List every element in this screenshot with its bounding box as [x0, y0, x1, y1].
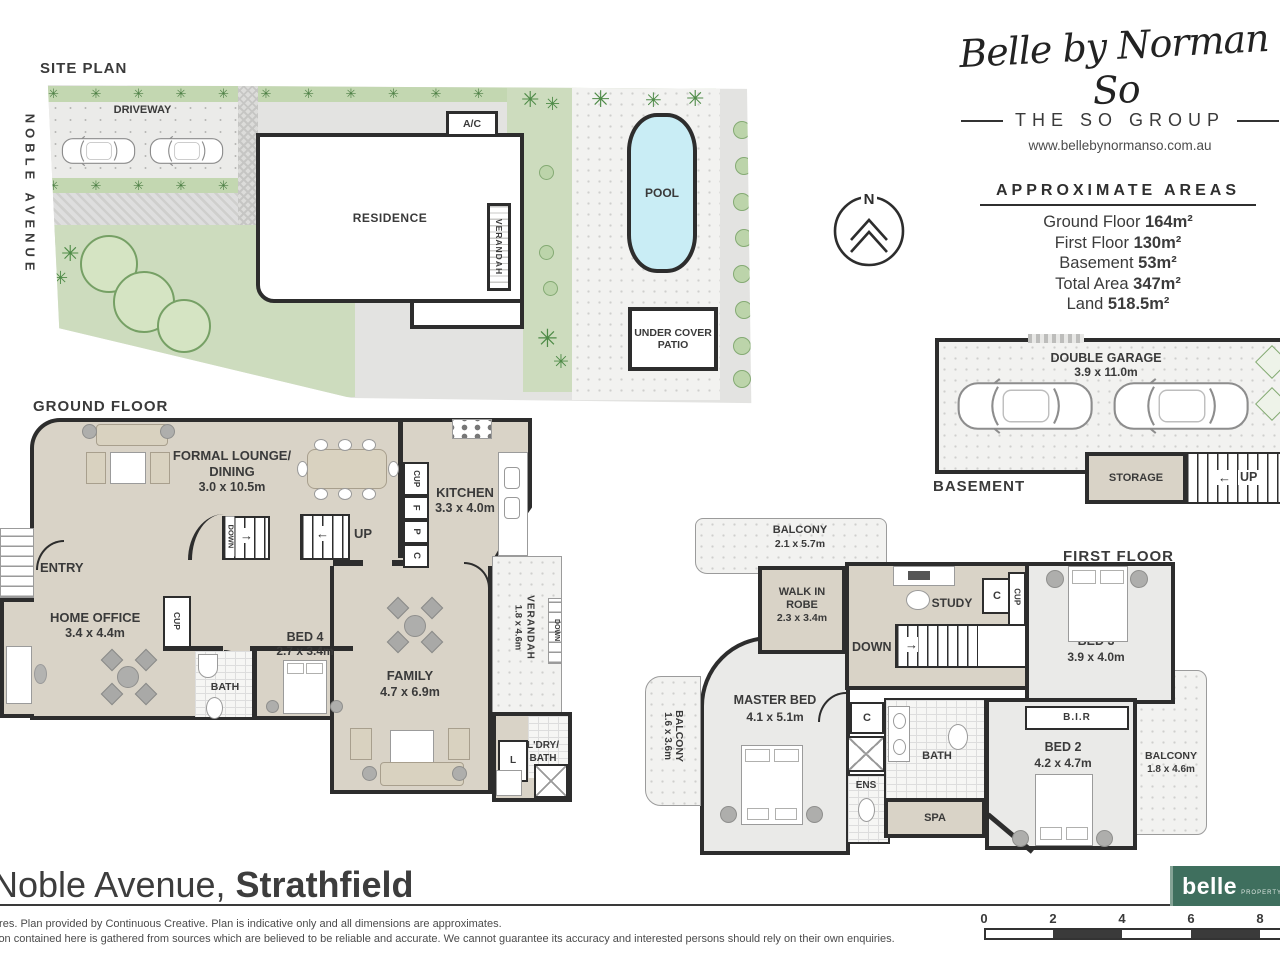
- wir-dims: 2.3 x 3.4m: [762, 612, 842, 624]
- palm-icon: ✳: [645, 91, 662, 111]
- address-suburb: Strathfield: [236, 864, 414, 905]
- area-row: Basement 53m²: [980, 253, 1256, 274]
- family-dims: 4.7 x 6.9m: [360, 685, 460, 700]
- nightstand-icon: [330, 700, 343, 713]
- tree-icon: [539, 245, 554, 260]
- washer-icon: [496, 770, 522, 796]
- rule-icon: [961, 120, 1003, 122]
- garage-label: DOUBLE GARAGE: [1040, 351, 1172, 366]
- nightstand-icon: [1012, 830, 1029, 847]
- up-label: UP: [354, 526, 372, 541]
- armchair-icon: [350, 728, 372, 760]
- bed4-dims: 2.7 x 3.4m: [262, 644, 348, 658]
- tree-icon: [543, 281, 558, 296]
- palm-icon: ✳: [537, 327, 558, 352]
- palm-icon: ✳: [686, 88, 704, 110]
- car-icon: [149, 127, 225, 175]
- arrow-right-icon: →: [240, 528, 253, 543]
- balcony-right-dims: 1.8 x 4.6m: [1138, 764, 1204, 776]
- plant-pot-icon: [362, 766, 377, 781]
- chair-icon: [314, 488, 328, 500]
- rule-icon: [1237, 120, 1279, 122]
- pool: POOL: [627, 113, 697, 273]
- balcony-top-label: BALCONY: [740, 524, 860, 537]
- svg-text:N: N: [864, 191, 875, 208]
- belle-logo-text: belle: [1182, 873, 1237, 900]
- shower-icon: [534, 764, 568, 798]
- chair-icon: [388, 461, 399, 477]
- cupboard-label: CUP: [1012, 572, 1021, 622]
- brand-group: THE SO GROUP: [955, 110, 1280, 131]
- north-compass-icon: N: [830, 190, 908, 270]
- desk-icon: [893, 566, 955, 586]
- chair-icon: [338, 488, 352, 500]
- nightstand-icon: [1096, 830, 1113, 847]
- toilet-icon: [858, 798, 875, 822]
- scale-tick: 8: [1256, 911, 1263, 926]
- wall: [333, 560, 363, 566]
- site-verandah: VERANDAH: [487, 203, 511, 291]
- coffee-table-icon: [110, 452, 146, 484]
- tree-icon: [733, 193, 751, 211]
- plant-pot-icon: [82, 424, 97, 439]
- balcony-right-label: BALCONY: [1140, 750, 1202, 762]
- lounge-dims: 3.0 x 10.5m: [152, 480, 312, 495]
- car-icon: [61, 127, 137, 175]
- tree-icon: [157, 299, 211, 353]
- site-plan-title: SITE PLAN: [40, 60, 127, 78]
- garage-door: [1028, 334, 1084, 343]
- bed2-label: BED 2: [1028, 740, 1098, 755]
- plant-icon: ✳: [61, 243, 79, 265]
- patio-label-line2: PATIO: [658, 339, 689, 351]
- residence-label: RESIDENCE: [353, 211, 428, 225]
- basement-up-label: UP: [1238, 470, 1259, 485]
- plant-pot-icon: [452, 766, 467, 781]
- brand-logo-script: Belle by Norman So: [948, 15, 1280, 120]
- fridge: F: [403, 496, 429, 520]
- vanity-icon: [888, 706, 910, 762]
- car-icon: [1112, 376, 1252, 436]
- tree-icon: [735, 229, 753, 247]
- tree-icon: [539, 165, 554, 180]
- bath-label: BATH: [200, 681, 250, 693]
- tree-icon: [733, 265, 751, 283]
- bed4-label: BED 4: [262, 630, 348, 645]
- bed2-dims: 4.2 x 4.7m: [1023, 756, 1103, 770]
- area-row: Land 518.5m²: [980, 294, 1256, 315]
- toilet-icon: [948, 724, 968, 750]
- spa-room: SPA: [884, 798, 986, 838]
- armchair-icon: [86, 452, 106, 484]
- balcony-top-dims: 2.1 x 5.7m: [740, 538, 860, 550]
- built-in-robe: B.I.R: [1025, 706, 1129, 730]
- tree-icon: [733, 370, 751, 388]
- lounge-label-line2: DINING: [152, 464, 312, 479]
- pool-label: POOL: [645, 186, 679, 200]
- arrow-left-icon: ←: [316, 526, 329, 541]
- belle-logo-sub: PROPERTY: [1241, 890, 1280, 896]
- arrow-right-icon: →: [905, 637, 918, 652]
- ac-label: A/C: [463, 118, 481, 130]
- nightstand-icon: [1130, 570, 1148, 588]
- nightstand-icon: [806, 806, 823, 823]
- disclaimer-line1: tres. Plan provided by Continuous Creati…: [0, 918, 502, 930]
- under-cover-patio: UNDER COVER PATIO: [628, 307, 718, 371]
- ff-down-label: DOWN: [850, 640, 894, 655]
- nightstand-icon: [266, 700, 279, 713]
- storage-label: STORAGE: [1109, 472, 1163, 485]
- verandah-down-label: DOWN: [552, 602, 560, 658]
- property-address: Noble Avenue, Strathfield: [0, 864, 414, 906]
- driveway-label: DRIVEWAY: [90, 104, 195, 117]
- brand-website[interactable]: www.bellebynormanso.com.au: [955, 138, 1280, 153]
- scale-tick: 4: [1118, 911, 1125, 926]
- address-street: Noble Avenue,: [0, 864, 236, 905]
- nightstand-icon: [1046, 570, 1064, 588]
- site-verandah-label: VERANDAH: [494, 219, 504, 275]
- ground-floor-title: GROUND FLOOR: [33, 398, 168, 416]
- toilet-icon: [206, 697, 223, 719]
- chair-icon: [314, 439, 328, 451]
- car-icon: [956, 376, 1096, 436]
- disclaimer-line2: ion contained here is gathered from sour…: [0, 933, 895, 945]
- tree-icon: [733, 337, 751, 355]
- kitchen-label: KITCHEN: [415, 485, 515, 500]
- belle-property-logo: belle PROPERTY: [1170, 866, 1280, 906]
- dining-table-icon: [307, 449, 387, 489]
- divider-rule: [0, 904, 1170, 906]
- bed3-dims: 3.9 x 4.0m: [1049, 650, 1143, 664]
- bed-icon: [1035, 774, 1093, 846]
- family-label: FAMILY: [360, 668, 460, 683]
- stairs-down-label: DOWN: [226, 516, 235, 556]
- stair-landing: [978, 626, 1025, 666]
- wir-label-line1: WALK IN: [762, 586, 842, 599]
- table-icon: [117, 666, 139, 688]
- scale-tick: 2: [1049, 911, 1056, 926]
- tree-icon: [733, 121, 751, 139]
- scale-tick: 0: [980, 911, 987, 926]
- gf-verandah-label: VERANDAH 1.8 x 4.6m: [513, 568, 536, 688]
- wir-label-line2: ROBE: [762, 599, 842, 612]
- chair-icon: [297, 461, 308, 477]
- palm-icon: ✳: [591, 88, 610, 111]
- kitchen-dims: 3.3 x 4.0m: [415, 501, 515, 516]
- study-label: STUDY: [920, 596, 984, 610]
- approximate-areas: APPROXIMATE AREAS Ground Floor 164m² Fir…: [980, 182, 1256, 315]
- bed-icon: [1068, 566, 1128, 642]
- ens-label: ENS: [848, 780, 884, 792]
- table-icon: [404, 615, 426, 637]
- chair-icon: [362, 439, 376, 451]
- hedge-icon: ✳ ✳ ✳ ✳ ✳ ✳ ✳ ✳ ✳ ✳ ✳ ✳ ✳ ✳ ✳ ✳ ✳ ✳ ✳ ✳ …: [48, 178, 238, 193]
- patio-label-line1: UNDER COVER: [634, 327, 712, 339]
- vanity-icon: [198, 654, 218, 678]
- master-dims: 4.1 x 5.1m: [723, 710, 827, 724]
- stove-icon: [452, 419, 492, 439]
- balcony-left-label: BALCONY 1.6 x 3.6m: [661, 676, 685, 796]
- site-plan: ✳ ✳ ✳ ✳ ✳ ✳ ✳ ✳ ✳ ✳ ✳ ✳ ✳ ✳ ✳ ✳ ✳ ✳ ✳ ✳ …: [45, 85, 757, 405]
- armchair-icon: [150, 452, 170, 484]
- home-office-dims: 3.4 x 4.4m: [50, 626, 140, 641]
- chair-icon: [362, 488, 376, 500]
- plant-icon: ✳: [53, 269, 68, 287]
- master-label: MASTER BED: [723, 693, 827, 708]
- areas-title: APPROXIMATE AREAS: [980, 182, 1256, 206]
- ac-unit: A/C: [446, 111, 498, 137]
- entry-label: ENTRY: [40, 560, 84, 575]
- arrow-left-icon: ←: [1216, 470, 1233, 485]
- scale-bar-track: [984, 928, 1280, 940]
- ff-bath-label: BATH: [910, 750, 964, 763]
- coffee-table-icon: [390, 730, 434, 766]
- cupboard-label: CUP: [172, 597, 182, 645]
- entry-steps: [0, 528, 34, 598]
- chair-icon: [34, 664, 47, 684]
- ldry-label-line1: L'DRY/: [518, 740, 568, 752]
- area-row: First Floor 130m²: [980, 233, 1256, 254]
- basement-title: BASEMENT: [933, 478, 1025, 496]
- closet: C: [403, 544, 429, 568]
- sofa-icon: [96, 424, 168, 446]
- tree-icon: [735, 157, 753, 175]
- palm-icon: ✳: [553, 353, 569, 372]
- cupboard: CUP: [403, 462, 429, 496]
- residence-extension: [410, 299, 524, 329]
- pantry: P: [403, 520, 429, 544]
- armchair-icon: [448, 728, 470, 760]
- palm-icon: ✳: [545, 95, 560, 113]
- residence: RESIDENCE: [256, 133, 524, 303]
- wall: [252, 650, 257, 718]
- home-office-label: HOME OFFICE: [50, 610, 140, 625]
- tree-icon: [735, 301, 753, 319]
- palm-icon: ✳: [521, 89, 539, 111]
- storage-room: STORAGE: [1085, 452, 1187, 504]
- nightstand-icon: [720, 806, 737, 823]
- brand-group-name: THE SO GROUP: [1015, 110, 1225, 131]
- area-row: Total Area 347m²: [980, 274, 1256, 295]
- street-name-label: NOBLE AVENUE: [22, 110, 37, 280]
- plant-pot-icon: [160, 424, 175, 439]
- logo-accent-strip: [1170, 866, 1173, 906]
- floorplan-page: { "branding": { "logo_script": "Belle by…: [0, 0, 1280, 960]
- scale-tick: 6: [1187, 911, 1194, 926]
- area-row: Ground Floor 164m²: [980, 212, 1256, 233]
- bed-icon: [741, 745, 803, 825]
- lounge-label-line1: FORMAL LOUNGE/: [152, 448, 312, 463]
- shower-icon: [847, 736, 885, 772]
- closet: C: [850, 702, 884, 734]
- chair-icon: [338, 439, 352, 451]
- bed-icon: [283, 660, 327, 714]
- desk-icon: [6, 646, 32, 704]
